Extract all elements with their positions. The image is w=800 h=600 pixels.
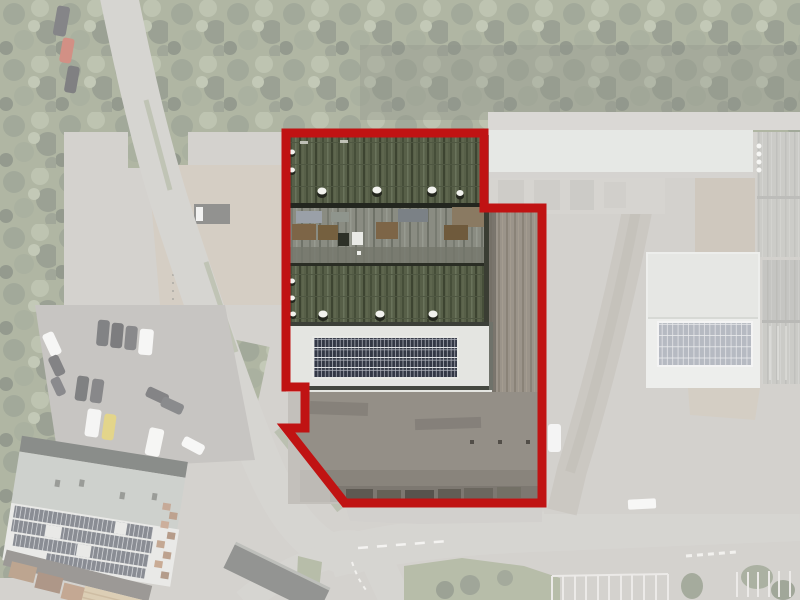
fade-overlay (0, 0, 800, 600)
aerial-photo-canvas (0, 0, 800, 600)
